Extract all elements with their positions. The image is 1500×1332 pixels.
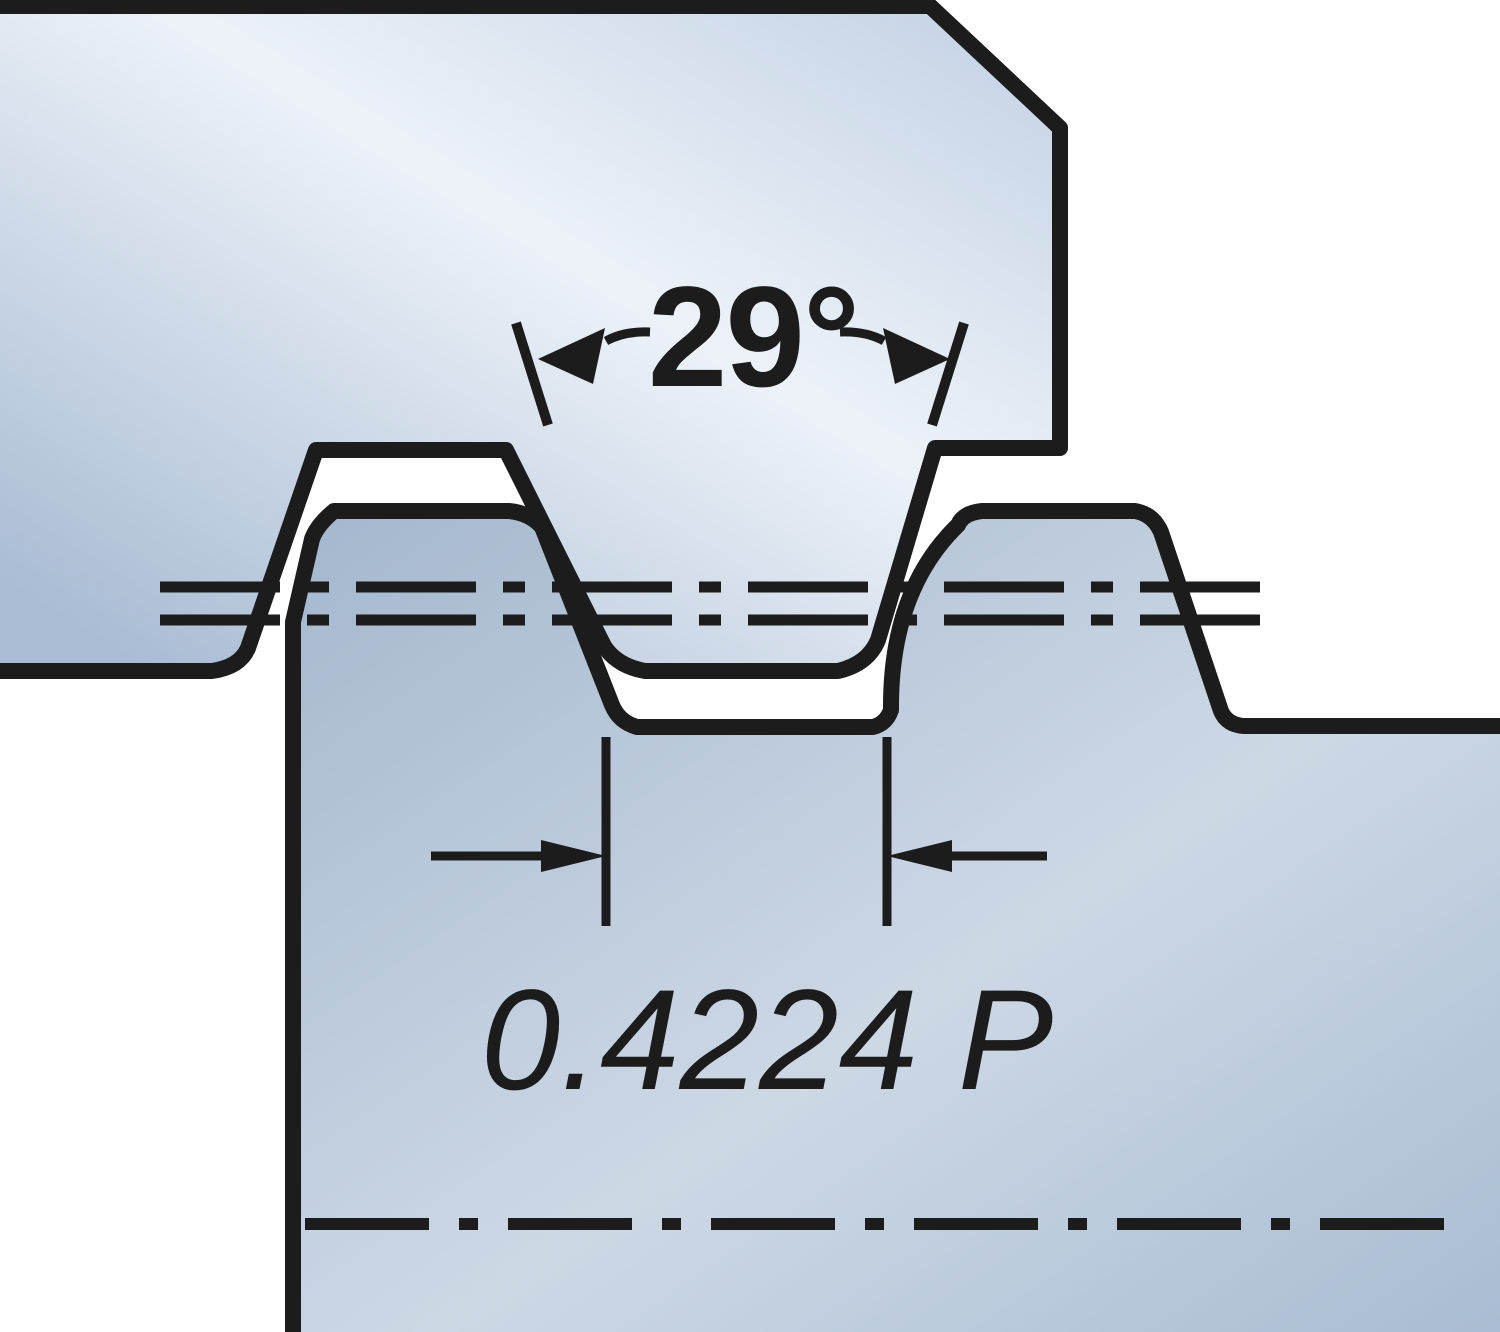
- root-width-label: 0.4224 P: [481, 961, 1054, 1120]
- thread-profile-diagram: 29° 0.4224 P: [0, 0, 1500, 1332]
- thread-profile-figure: 29° 0.4224 P: [0, 0, 1500, 1332]
- thread-angle-label: 29°: [648, 258, 858, 417]
- workpiece-body: [293, 511, 1500, 1332]
